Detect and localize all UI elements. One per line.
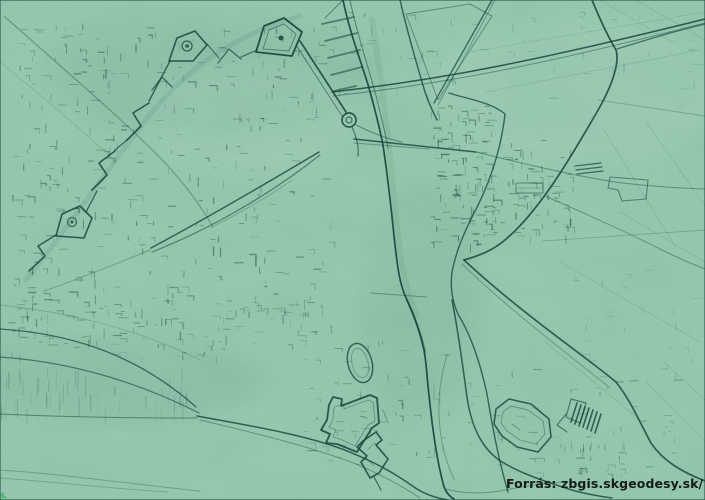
lidar-map-image: Forrás: zbgis.skgeodesy.sk/ Lidar [0,0,705,500]
source-caption: Forrás: zbgis.skgeodesy.sk/ Lidar [506,476,705,491]
map-canvas [0,0,705,500]
